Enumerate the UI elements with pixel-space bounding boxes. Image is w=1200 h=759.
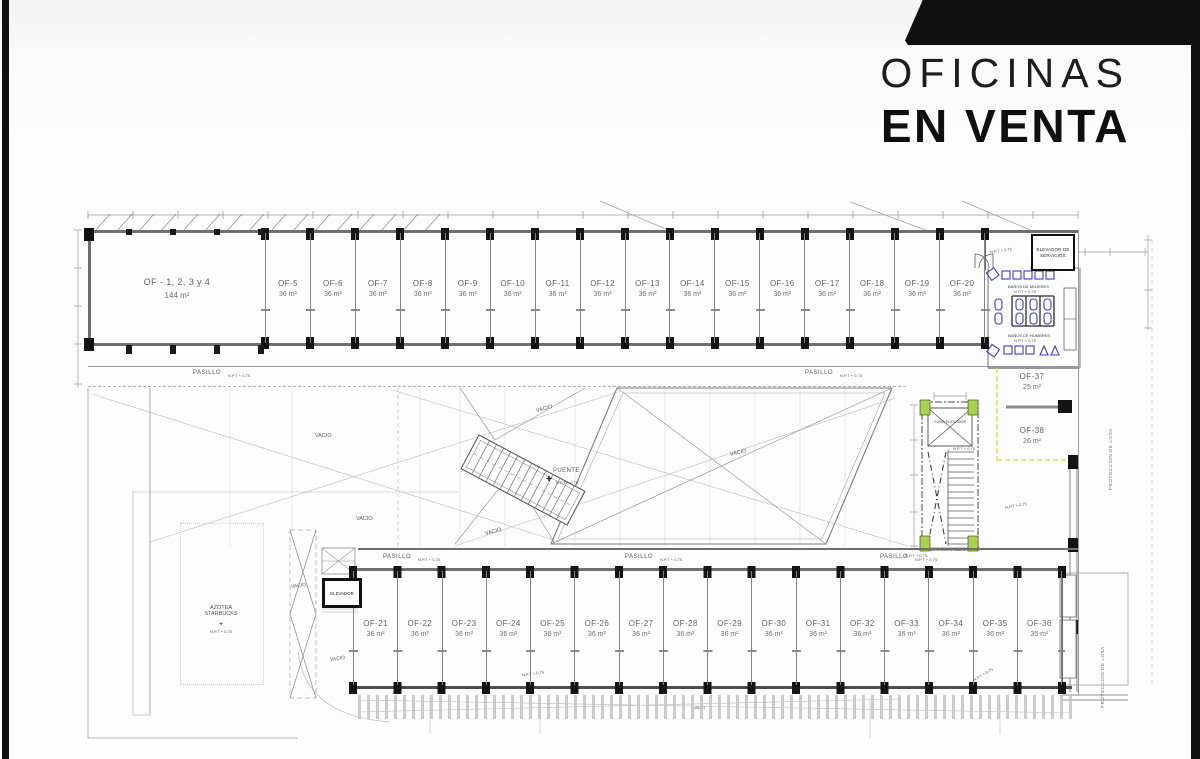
office-name: OF-33 bbox=[894, 619, 919, 628]
elevator: ELEVADOR bbox=[322, 578, 362, 608]
office-unit: OF-9 36 m² bbox=[445, 233, 490, 343]
office-name: OF-31 bbox=[806, 619, 831, 628]
bridge-level-cross: ✚ bbox=[546, 475, 552, 483]
office-name: OF-15 bbox=[725, 279, 750, 288]
azotea-label-2: STARBUCKS bbox=[180, 611, 262, 617]
office-area: 25 m² bbox=[1000, 384, 1064, 391]
office-name: OF-7 bbox=[368, 279, 388, 288]
office-unit: OF-15 36 m² bbox=[714, 233, 759, 343]
office-name: OF - 1, 2, 3 y 4 bbox=[144, 277, 210, 287]
office-name: OF-26 bbox=[585, 619, 610, 628]
upper-corridor-line bbox=[88, 366, 1078, 367]
office-area: 36 m² bbox=[544, 631, 562, 638]
office-unit: OF-7 36 m² bbox=[355, 233, 400, 343]
office-name: OF-20 bbox=[950, 279, 975, 288]
office-area: 36 m² bbox=[459, 291, 477, 298]
office-name: OF-32 bbox=[850, 619, 875, 628]
office-name: OF-5 bbox=[278, 279, 298, 288]
office-unit: OF-25 36 m² bbox=[530, 571, 574, 685]
office-unit-37: OF-37 25 m² bbox=[1000, 372, 1064, 391]
void-label: VACIO bbox=[315, 433, 332, 439]
top-right-black-band bbox=[905, 0, 1200, 45]
title-block: OFICINAS EN VENTA bbox=[880, 50, 1130, 153]
office-area: 36 m² bbox=[683, 291, 701, 298]
office-area: 36 m² bbox=[773, 291, 791, 298]
office-area: 36 m² bbox=[411, 631, 429, 638]
azotea-level: N.P.T + 0.75 bbox=[180, 629, 262, 634]
corridor-label: PASILLO bbox=[383, 554, 411, 560]
office-name: OF-38 bbox=[1000, 426, 1064, 435]
office-area: 36 m² bbox=[279, 291, 297, 298]
void-edge-dashed bbox=[88, 386, 906, 387]
office-unit: OF-23 36 m² bbox=[442, 571, 486, 685]
top-office-row: OF-5 36 m² OF-6 36 m² OF-7 36 m² OF-8 36… bbox=[265, 233, 985, 343]
office-area: 144 m² bbox=[165, 291, 190, 300]
office-unit: OF-12 36 m² bbox=[580, 233, 625, 343]
facade-louver-strip bbox=[358, 695, 1072, 719]
office-name: OF-12 bbox=[590, 279, 615, 288]
office-name: OF-24 bbox=[496, 619, 521, 628]
office-unit: OF-28 36 m² bbox=[663, 571, 707, 685]
office-area: 26 m² bbox=[1000, 438, 1064, 445]
office-area: 36 m² bbox=[414, 291, 432, 298]
office-name: OF-10 bbox=[500, 279, 525, 288]
office-name: OF-8 bbox=[413, 279, 433, 288]
office-area: 36 m² bbox=[765, 631, 783, 638]
office-unit: OF-34 36 m² bbox=[928, 571, 972, 685]
corridor-level: N.P.T + 0.75 bbox=[840, 373, 862, 378]
office-area: 35 m² bbox=[1030, 631, 1048, 638]
office-unit: OF-20 36 m² bbox=[939, 233, 985, 343]
office-name: OF-25 bbox=[540, 619, 565, 628]
office-unit: OF-32 36 m² bbox=[840, 571, 884, 685]
right-edge-bar bbox=[1191, 0, 1200, 759]
office-area: 36 m² bbox=[549, 291, 567, 298]
office-unit: OF-29 36 m² bbox=[707, 571, 751, 685]
office-name: OF-17 bbox=[815, 279, 840, 288]
azotea-block: AZOTEA STARBUCKS + N.P.T + 0.75 bbox=[180, 605, 262, 634]
office-area: 36 m² bbox=[369, 291, 387, 298]
office-name: OF-23 bbox=[452, 619, 477, 628]
office-area: 36 m² bbox=[809, 631, 827, 638]
office-unit: OF-24 36 m² bbox=[486, 571, 530, 685]
office-area: 36 m² bbox=[588, 631, 606, 638]
office-area: 36 m² bbox=[863, 291, 881, 298]
left-edge-bar bbox=[2, 0, 9, 759]
office-area: 36 m² bbox=[942, 631, 960, 638]
office-unit: OF-30 36 m² bbox=[751, 571, 795, 685]
office-name: OF-35 bbox=[983, 619, 1008, 628]
mens-bath-level: N.P.T + 0.75 bbox=[1014, 338, 1036, 343]
service-elevator-label: ELEVADOR DE SERVICIOS bbox=[1033, 247, 1073, 258]
office-unit: OF-6 36 m² bbox=[310, 233, 355, 343]
office-area: 36 m² bbox=[676, 631, 694, 638]
shaft-level: N.P.T + 0.75 bbox=[953, 446, 975, 451]
office-unit: OF-16 36 m² bbox=[759, 233, 804, 343]
office-unit: OF-18 36 m² bbox=[849, 233, 894, 343]
azotea-cross: + bbox=[180, 621, 262, 628]
office-unit: OF-31 36 m² bbox=[796, 571, 840, 685]
office-area: 36 m² bbox=[499, 631, 517, 638]
office-unit: OF-11 36 m² bbox=[535, 233, 580, 343]
office-area: 36 m² bbox=[324, 291, 342, 298]
office-area: 36 m² bbox=[504, 291, 522, 298]
office-area: 36 m² bbox=[818, 291, 836, 298]
office-unit: OF-19 36 m² bbox=[894, 233, 939, 343]
office-unit: OF-17 36 m² bbox=[804, 233, 849, 343]
office-name: OF-27 bbox=[629, 619, 654, 628]
office-name: OF-14 bbox=[680, 279, 705, 288]
title-line2: EN VENTA bbox=[880, 99, 1130, 153]
office-area: 36 m² bbox=[594, 291, 612, 298]
office-name: OF-21 bbox=[363, 619, 388, 628]
corridor-label: PASILLO bbox=[193, 370, 221, 376]
big-office-bottom-columns bbox=[126, 345, 268, 354]
office-name: OF-6 bbox=[323, 279, 343, 288]
office-area: 36 m² bbox=[853, 631, 871, 638]
office-name: OF-29 bbox=[717, 619, 742, 628]
bridge-level: N.P.T + 0.75 bbox=[556, 480, 578, 485]
right-boundary-line bbox=[1078, 230, 1079, 695]
office-name: OF-11 bbox=[546, 279, 570, 288]
office-area: 36 m² bbox=[898, 631, 916, 638]
shaft-level: N.P.T + 0.75 bbox=[905, 553, 927, 558]
office-name: OF-22 bbox=[408, 619, 433, 628]
office-name: OF-28 bbox=[673, 619, 698, 628]
bottom-office-row: OF-21 36 m² OF-22 36 m² OF-23 36 m² OF-2… bbox=[353, 571, 1062, 685]
corridor-level: N.P.T + 0.75 bbox=[418, 557, 440, 562]
lower-corridor-top-line bbox=[358, 548, 1078, 550]
office-area: 36 m² bbox=[367, 631, 385, 638]
slab-projection-label: PROYECCION DE LOSA bbox=[1108, 400, 1113, 490]
office-unit: OF-14 36 m² bbox=[669, 233, 714, 343]
office-unit: OF-33 36 m² bbox=[884, 571, 928, 685]
office-unit: OF-27 36 m² bbox=[619, 571, 663, 685]
office-area: 36 m² bbox=[728, 291, 746, 298]
corridor-label: PASILLO bbox=[625, 554, 653, 560]
womens-bath-level: N.P.T + 0.75 bbox=[1014, 289, 1036, 294]
office-unit: OF-13 36 m² bbox=[625, 233, 670, 343]
office-area: 36 m² bbox=[639, 291, 657, 298]
title-line1: OFICINAS bbox=[880, 50, 1130, 97]
office-area: 36 m² bbox=[721, 631, 739, 638]
office-name: OF-34 bbox=[939, 619, 964, 628]
office-unit: OF-10 36 m² bbox=[490, 233, 535, 343]
corridor-level: N.P.T + 0.75 bbox=[228, 373, 250, 378]
office-name: OF-9 bbox=[458, 279, 478, 288]
office-name: OF-19 bbox=[905, 279, 930, 288]
office-area: 36 m² bbox=[986, 631, 1004, 638]
void-label: VACIO bbox=[356, 516, 373, 522]
office-name: OF-16 bbox=[770, 279, 795, 288]
office-unit: OF-22 36 m² bbox=[397, 571, 441, 685]
elevator-label: ELEVADOR bbox=[330, 591, 354, 596]
corridor-level: N.P.T + 0.75 bbox=[660, 557, 682, 562]
office-name: OF-18 bbox=[860, 279, 885, 288]
office-area: 36 m² bbox=[908, 291, 926, 298]
corridor-label: PASILLO bbox=[880, 554, 908, 560]
office-unit: OF-5 36 m² bbox=[265, 233, 310, 343]
office-area: 36 m² bbox=[632, 631, 650, 638]
office-area: 36 m² bbox=[953, 291, 971, 298]
office-unit-38: OF-38 26 m² bbox=[1000, 426, 1064, 445]
elevator-shaft-label: CUBO ELEVADOR bbox=[928, 420, 972, 424]
office-name: OF-36 bbox=[1027, 619, 1052, 628]
office-unit-big: OF - 1, 2, 3 y 4 144 m² bbox=[91, 233, 263, 343]
office-name: OF-13 bbox=[635, 279, 660, 288]
slab-projection-label: PROYECCION DE LOSA bbox=[1100, 618, 1105, 708]
office-name: OF-37 bbox=[1000, 372, 1064, 381]
office-unit: OF-8 36 m² bbox=[400, 233, 445, 343]
office-unit: OF-35 36 m² bbox=[973, 571, 1017, 685]
bridge-label: PUENTE bbox=[553, 468, 580, 474]
office-unit: OF-26 36 m² bbox=[574, 571, 618, 685]
service-elevator: ELEVADOR DE SERVICIOS bbox=[1031, 234, 1075, 271]
office-name: OF-30 bbox=[762, 619, 787, 628]
office-area: 36 m² bbox=[455, 631, 473, 638]
office-unit: OF-36 35 m² bbox=[1017, 571, 1062, 685]
azotea-outline bbox=[180, 523, 264, 685]
corridor-label: PASILLO bbox=[805, 370, 833, 376]
